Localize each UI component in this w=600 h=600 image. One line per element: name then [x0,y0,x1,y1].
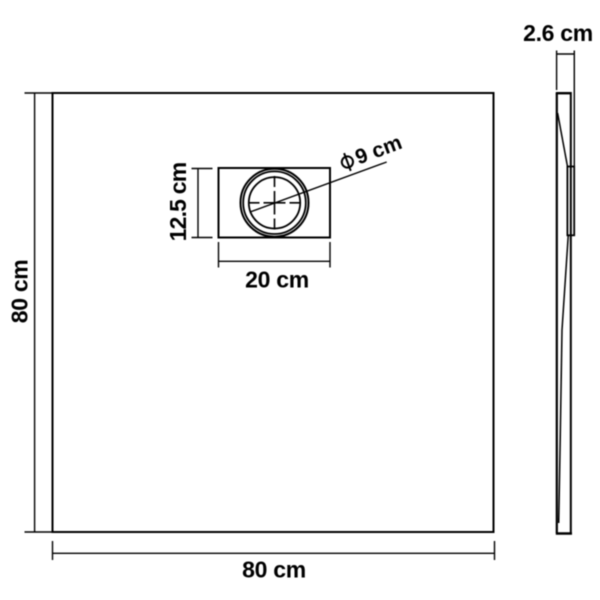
svg-text:80 cm: 80 cm [242,556,306,582]
svg-text:2.6 cm: 2.6 cm [523,20,593,46]
svg-text:12.5 cm: 12.5 cm [165,162,191,241]
svg-text:80 cm: 80 cm [7,260,33,324]
svg-text:20 cm: 20 cm [245,267,309,293]
